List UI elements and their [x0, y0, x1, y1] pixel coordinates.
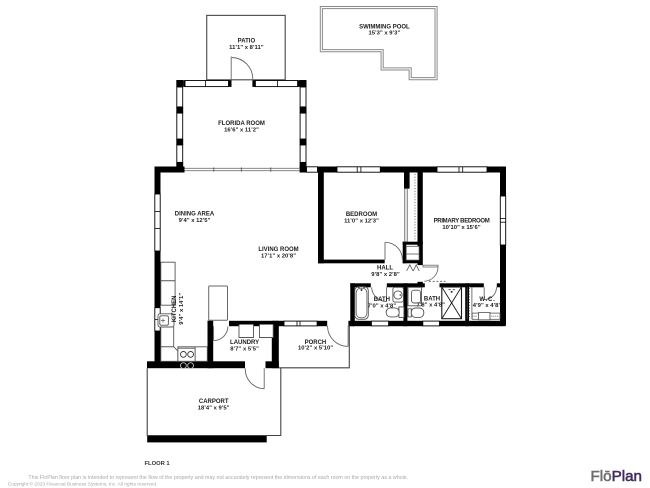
svg-text:10’2” x 5’10”: 10’2” x 5’10” — [298, 346, 333, 352]
svg-text:This FloPlan floor plan is int: This FloPlan floor plan is intended to r… — [28, 475, 408, 481]
svg-text:10’10” x 15’6”: 10’10” x 15’6” — [442, 225, 480, 231]
svg-text:7’8” x 4’8”: 7’8” x 4’8” — [417, 303, 446, 309]
svg-text:8’7” x 5’5”: 8’7” x 5’5” — [230, 347, 259, 353]
svg-text:SWIMMING POOL: SWIMMING POOL — [359, 24, 410, 30]
svg-text:BATH: BATH — [374, 297, 390, 303]
svg-text:17’1” x 20’8”: 17’1” x 20’8” — [261, 253, 296, 259]
svg-text:FlōPlan: FlōPlan — [591, 468, 643, 485]
svg-text:16’6” x 11’2”: 16’6” x 11’2” — [224, 127, 259, 133]
svg-text:PATIO: PATIO — [238, 39, 256, 45]
svg-text:PRIMARY BEDROOM: PRIMARY BEDROOM — [434, 219, 490, 225]
svg-text:KITCHEN: KITCHEN — [172, 295, 178, 322]
svg-text:4’9” x 4’8”: 4’9” x 4’8” — [473, 303, 502, 309]
svg-text:9’4” x 12’5”: 9’4” x 12’5” — [179, 218, 211, 224]
svg-text:LIVING ROOM: LIVING ROOM — [258, 247, 298, 253]
svg-text:LAUNDRY: LAUNDRY — [230, 340, 259, 346]
svg-text:11’0” x 12’3”: 11’0” x 12’3” — [344, 219, 379, 225]
svg-text:HALL: HALL — [377, 266, 393, 272]
svg-text:9’4” x 14’1”: 9’4” x 14’1” — [179, 293, 185, 325]
svg-text:15’3” x 9’3”: 15’3” x 9’3” — [368, 31, 400, 37]
svg-text:11’1” x 8’11”: 11’1” x 8’11” — [229, 45, 264, 51]
svg-text:FLOOR 1: FLOOR 1 — [145, 461, 171, 467]
svg-text:BEDROOM: BEDROOM — [346, 212, 377, 218]
svg-text:9’8” x 2’8”: 9’8” x 2’8” — [371, 272, 400, 278]
svg-text:BATH: BATH — [424, 296, 440, 302]
svg-text:DINING AREA: DINING AREA — [175, 212, 215, 218]
svg-text:18’4” x 9’5”: 18’4” x 9’5” — [198, 406, 230, 412]
svg-text:7’0” x 4’8”: 7’0” x 4’8” — [368, 303, 397, 309]
svg-text:Copyright © 2023 Financial Bus: Copyright © 2023 Financial Business Syst… — [8, 480, 158, 487]
svg-text:FLORIDA ROOM: FLORIDA ROOM — [218, 121, 265, 127]
svg-text:CARPORT: CARPORT — [199, 399, 229, 405]
